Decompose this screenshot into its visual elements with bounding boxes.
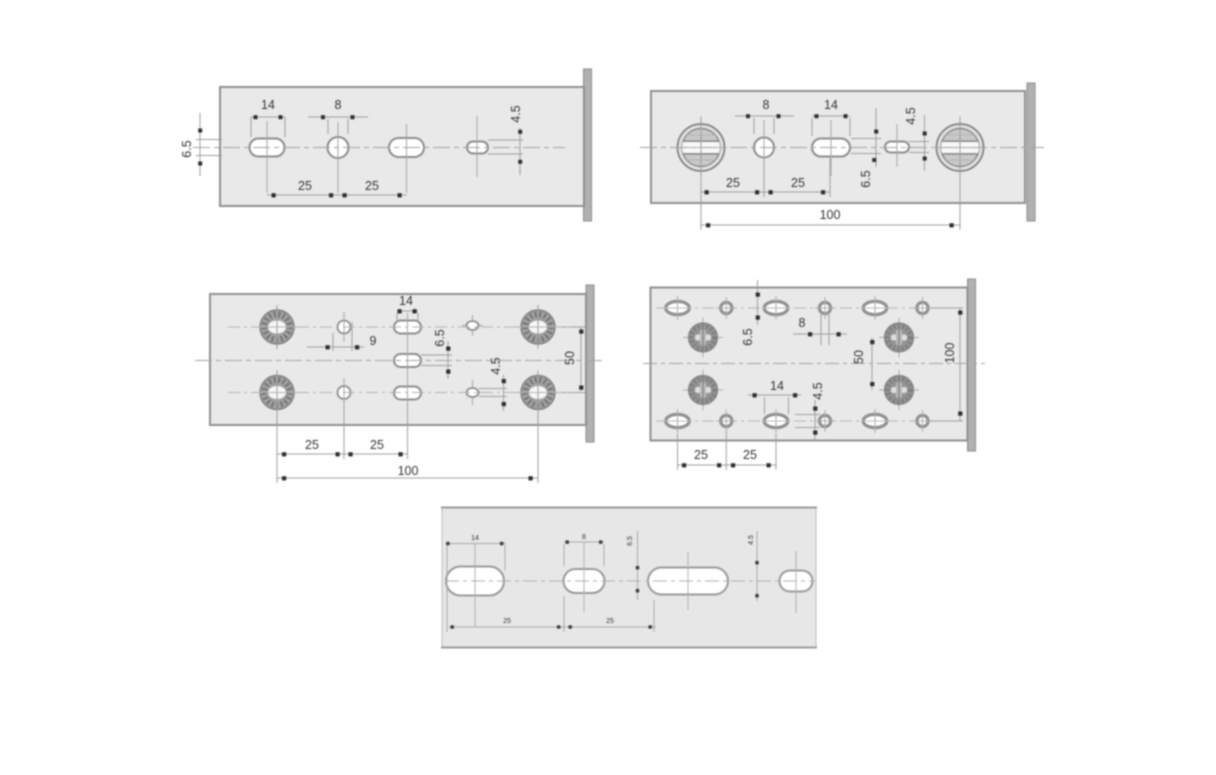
svg-text:6.5: 6.5 [627, 536, 634, 546]
svg-text:25: 25 [365, 179, 379, 193]
svg-text:9: 9 [370, 334, 377, 348]
svg-text:8: 8 [335, 98, 342, 112]
svg-text:4.5: 4.5 [748, 535, 755, 545]
svg-text:25: 25 [726, 176, 740, 190]
svg-text:25: 25 [298, 179, 312, 193]
svg-text:8: 8 [799, 316, 806, 330]
svg-text:25: 25 [370, 438, 384, 452]
svg-text:8: 8 [763, 98, 770, 112]
svg-text:100: 100 [820, 208, 841, 222]
svg-text:50: 50 [852, 350, 866, 364]
svg-text:6.5: 6.5 [859, 170, 873, 187]
svg-text:100: 100 [398, 464, 419, 478]
svg-text:14: 14 [471, 535, 479, 542]
svg-text:25: 25 [694, 448, 708, 462]
svg-text:6.5: 6.5 [741, 328, 755, 345]
svg-text:25: 25 [305, 438, 319, 452]
svg-text:4.5: 4.5 [811, 382, 825, 399]
svg-text:50: 50 [563, 351, 577, 365]
svg-text:25: 25 [503, 618, 511, 625]
svg-text:4.5: 4.5 [489, 357, 503, 374]
svg-text:14: 14 [261, 98, 275, 112]
svg-text:25: 25 [791, 176, 805, 190]
svg-text:14: 14 [770, 379, 784, 393]
svg-text:14: 14 [824, 98, 838, 112]
svg-text:100: 100 [943, 343, 957, 364]
svg-text:4.5: 4.5 [509, 105, 523, 122]
svg-text:8: 8 [582, 534, 586, 541]
svg-text:6.5: 6.5 [433, 329, 447, 346]
svg-text:4.5: 4.5 [904, 107, 918, 124]
svg-text:14: 14 [399, 294, 413, 308]
svg-text:25: 25 [743, 448, 757, 462]
svg-text:6.5: 6.5 [180, 140, 194, 157]
svg-text:25: 25 [606, 618, 614, 625]
